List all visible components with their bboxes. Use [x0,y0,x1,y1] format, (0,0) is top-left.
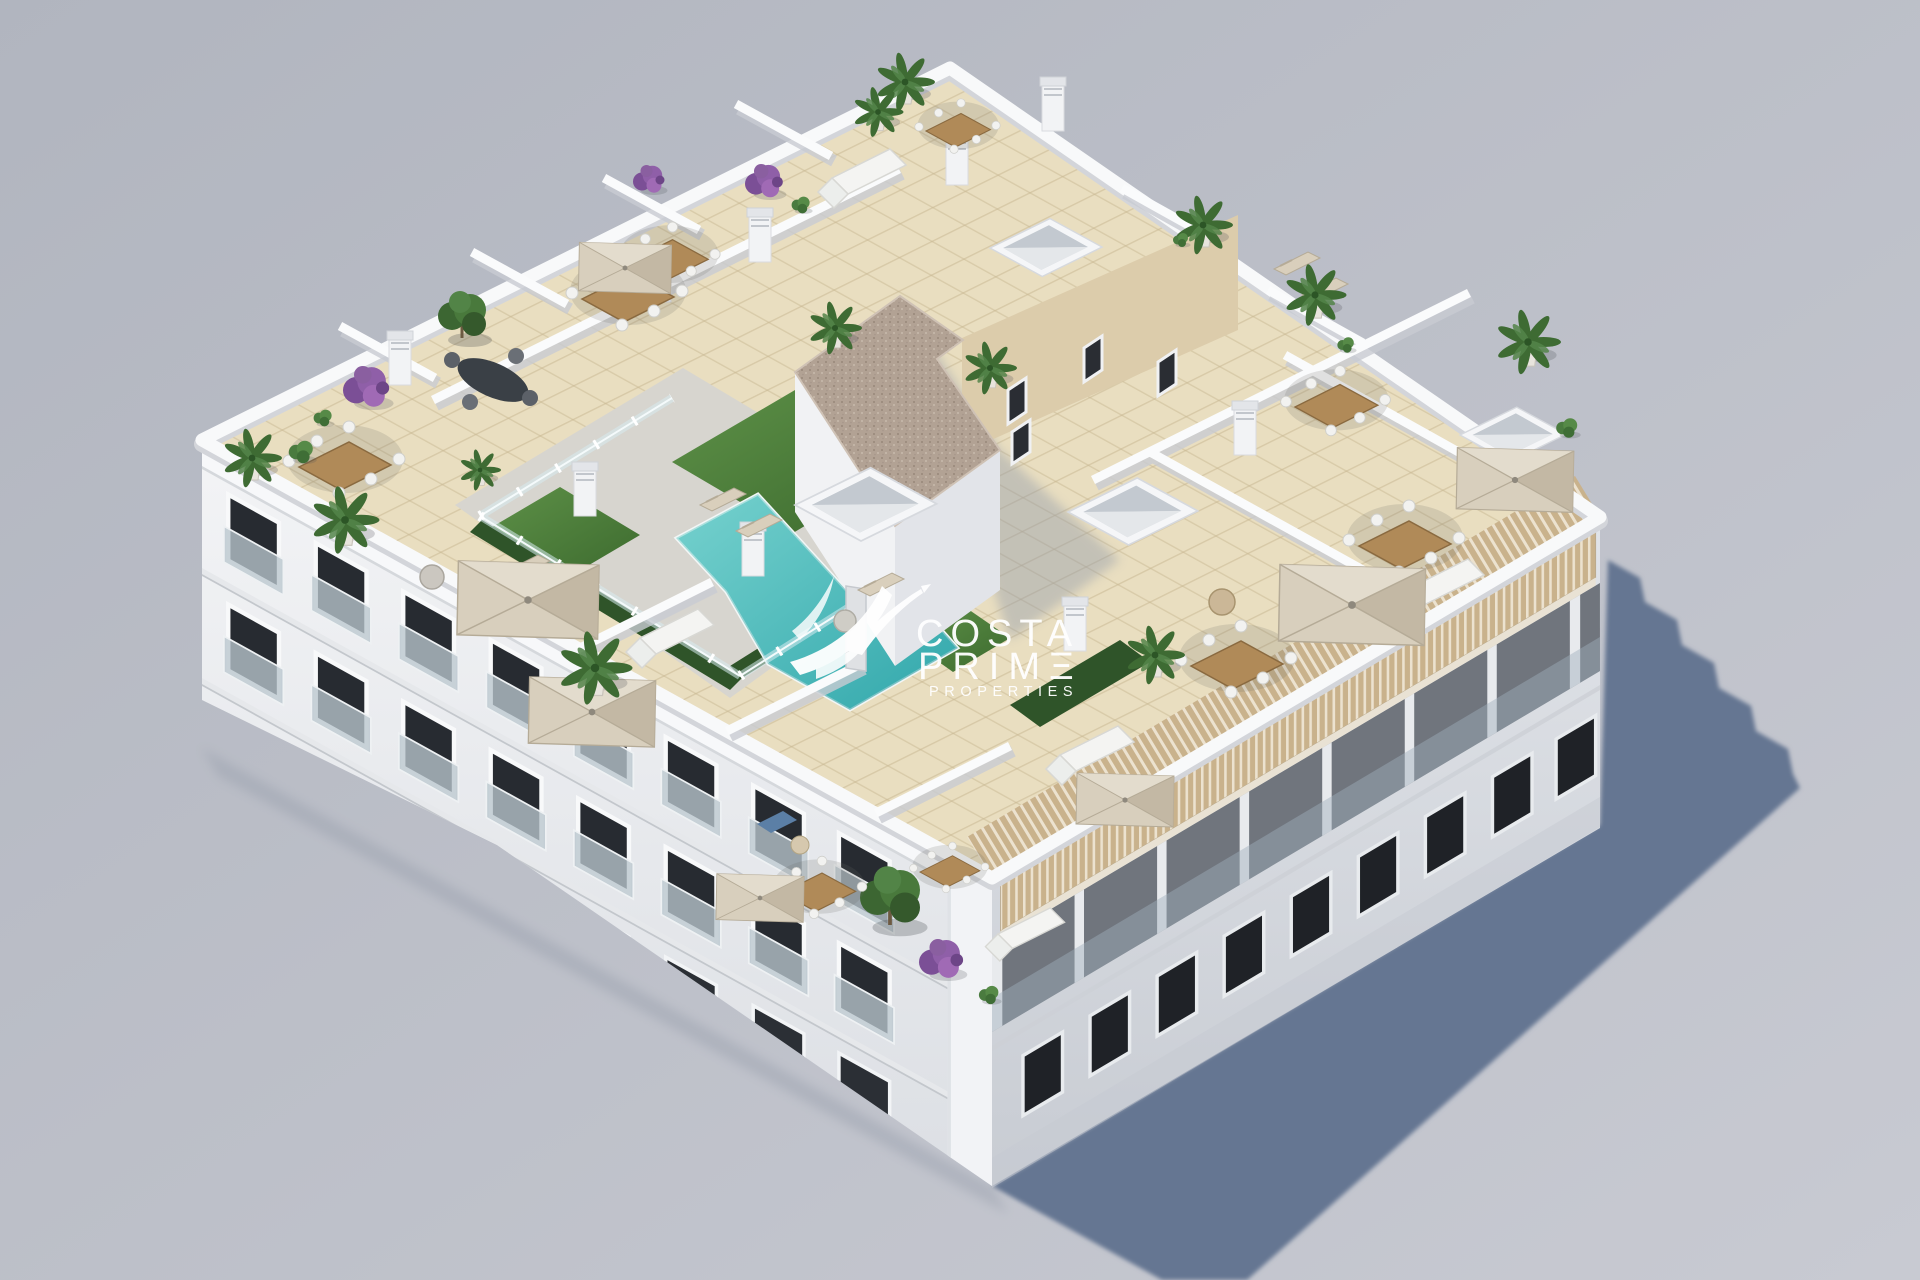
parasol [1076,773,1174,827]
chimney [747,208,773,262]
watermark-line3: PROPERTIES [929,684,1078,700]
render-canvas: COSTA PRIMΞ PROPERTIES [0,0,1920,1280]
parasol [578,242,671,293]
round-table [1209,589,1235,615]
parasol [716,874,804,923]
chimney [387,331,413,385]
chimney [1232,401,1258,455]
round-side-table [420,565,444,589]
building-render: COSTA PRIMΞ PROPERTIES [0,0,1920,1280]
chimney [572,462,598,516]
parasol [457,561,599,639]
parasol [1279,565,1426,646]
parasol [1456,448,1574,513]
round-pouf [791,836,809,854]
corner-pilaster [947,853,992,1188]
chimney [1040,77,1066,131]
watermark-line2: PRIMΞ [918,646,1083,688]
